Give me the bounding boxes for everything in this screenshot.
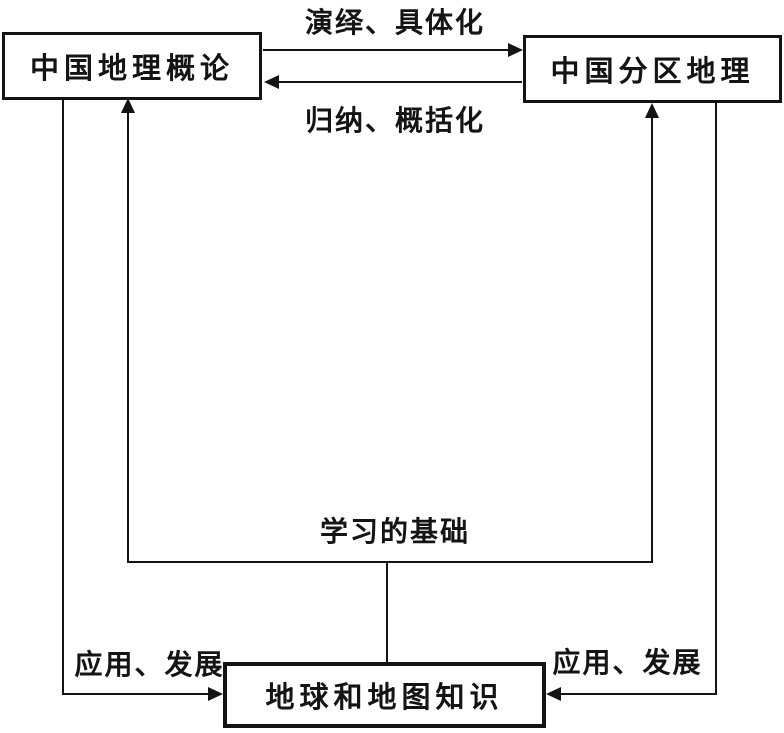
knowledge-structure-diagram: 中国地理概论 中国分区地理 地球和地图知识 演绎、具体化 归纳、概括化 应用、发… [0, 0, 784, 733]
edge-regional-to-earthmap-horizontal [560, 693, 717, 695]
arrowhead-right-icon [508, 43, 523, 57]
edge-overview-to-earthmap-vertical [62, 98, 64, 695]
edge-overview-to-earthmap-horizontal [62, 693, 209, 695]
arrow-overview-to-regional-line [263, 49, 511, 51]
arrow-regional-to-overview-line [279, 81, 522, 83]
box-china-regional-geography: 中国分区地理 [523, 35, 782, 103]
edge-regional-to-earthmap-vertical [715, 102, 717, 695]
edge-foundation-stem-line [386, 562, 388, 663]
label-application-development-right: 应用、发展 [540, 641, 715, 681]
box-china-regional-geography-label: 中国分区地理 [550, 48, 754, 90]
box-earth-and-map-knowledge-label: 地球和地图知识 [265, 674, 503, 716]
label-learning-foundation: 学习的基础 [280, 510, 510, 550]
arrowhead-up-icon [121, 98, 135, 113]
edge-foundation-to-overview-vertical [127, 112, 129, 562]
label-deduction-concretization: 演绎、具体化 [270, 1, 520, 41]
box-china-geography-overview-label: 中国地理概论 [30, 45, 234, 87]
label-induction-generalization: 归纳、概括化 [270, 99, 520, 139]
box-earth-and-map-knowledge: 地球和地图知识 [223, 662, 546, 728]
arrowhead-up-icon [645, 103, 659, 118]
edge-foundation-to-regional-vertical [651, 117, 653, 562]
box-china-geography-overview: 中国地理概论 [2, 32, 262, 100]
arrowhead-right-icon [208, 687, 223, 701]
edge-foundation-base-line [127, 561, 653, 563]
arrowhead-left-icon [264, 75, 279, 89]
arrowhead-left-icon [546, 687, 561, 701]
label-application-development-left: 应用、发展 [62, 643, 237, 683]
